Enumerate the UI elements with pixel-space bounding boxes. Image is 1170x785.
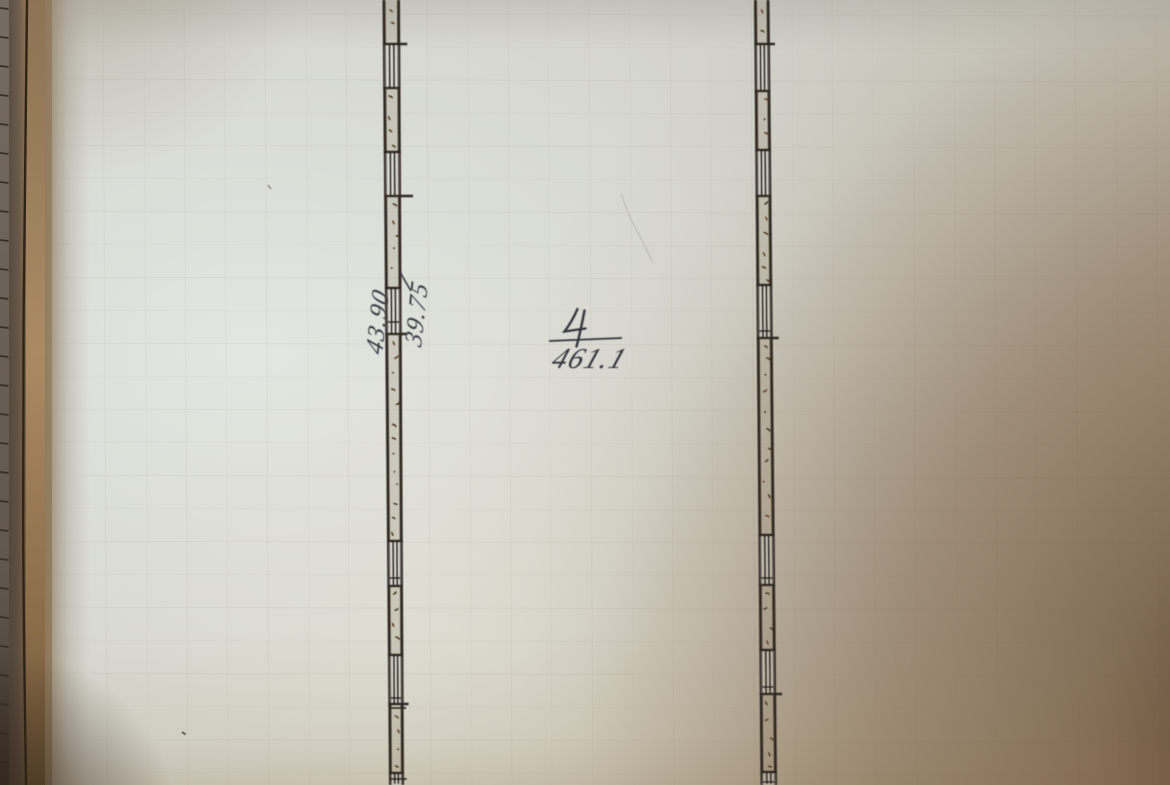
svg-text:461.1: 461.1 [548,343,632,375]
